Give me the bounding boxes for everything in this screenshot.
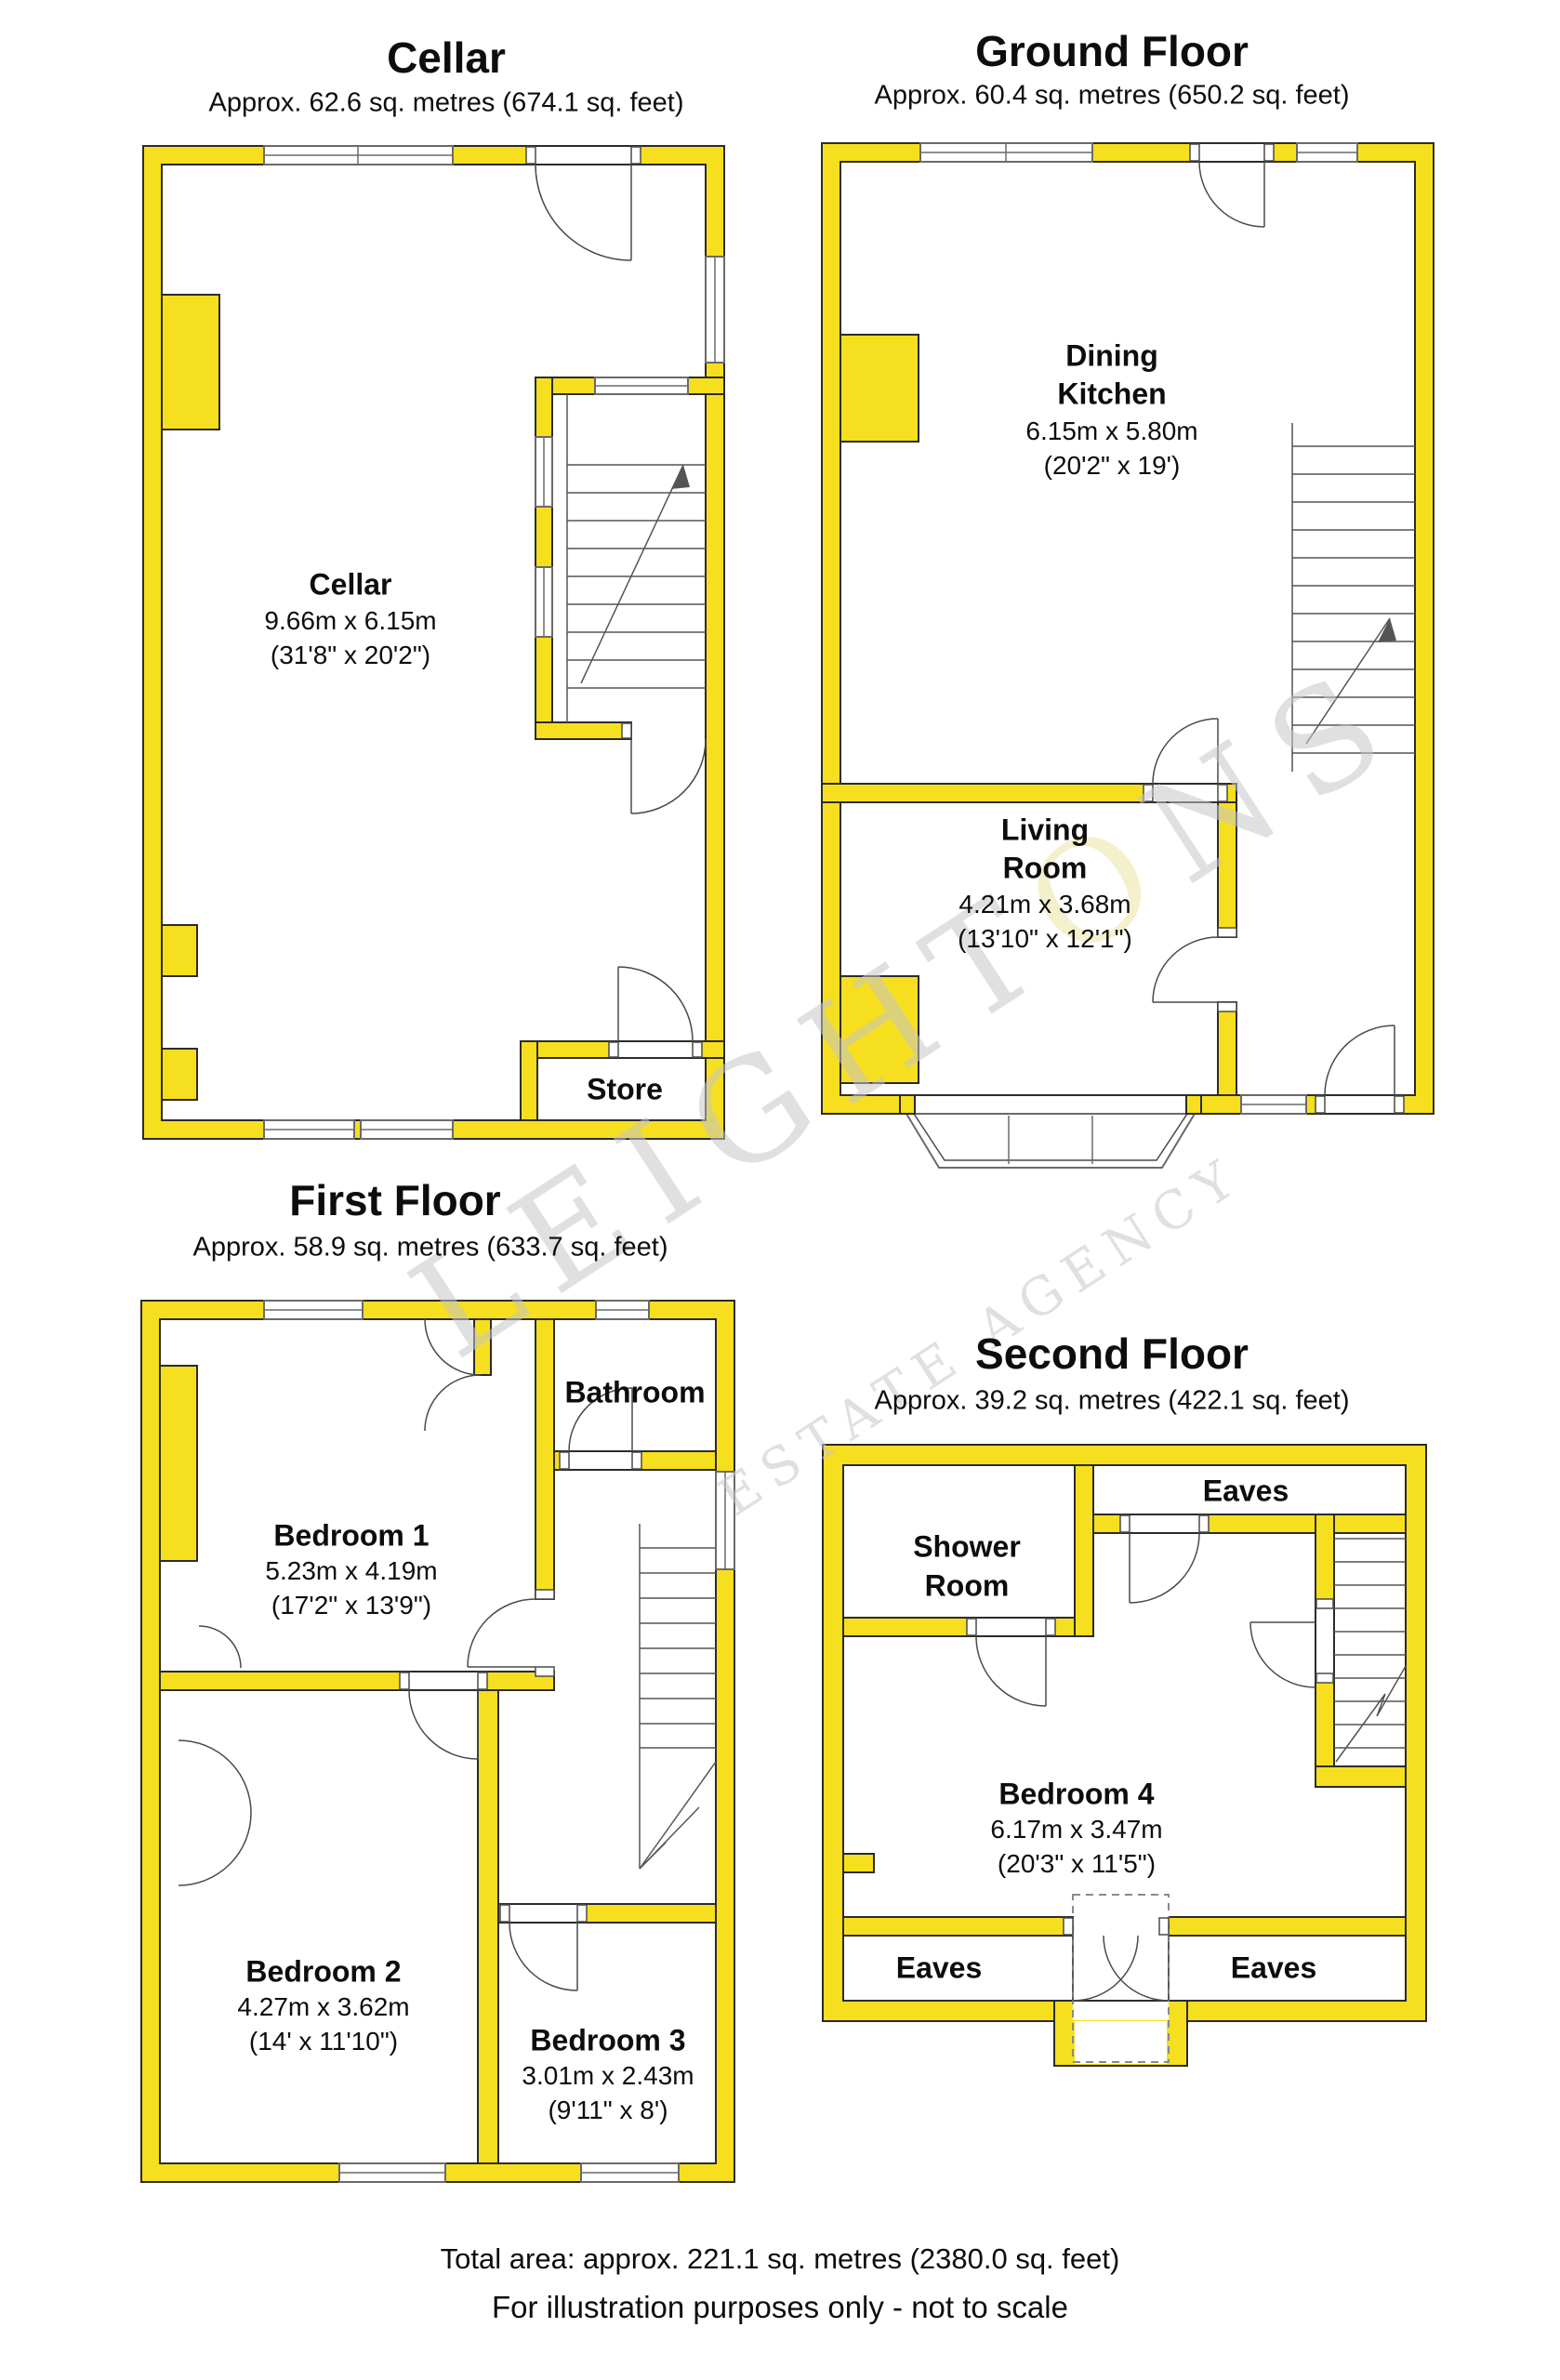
cellar-plan (143, 146, 724, 1139)
room-label-shower: Shower (913, 1530, 1021, 1565)
room-label-cellar: Cellar (310, 568, 392, 602)
room-dims-lr-metric: 4.21m x 3.68m (958, 890, 1130, 919)
room-label-eaves-right: Eaves (1231, 1951, 1317, 1986)
second-area: Approx. 39.2 sq. metres (422.1 sq. feet) (875, 1386, 1350, 1417)
room-dims-dk-imperial: (20'2" x 19') (1044, 451, 1181, 481)
room-label-shower-2: Room (925, 1569, 1010, 1604)
room-dims-b3-imperial: (9'11" x 8') (548, 2096, 668, 2125)
room-dims-b1-imperial: (17'2" x 13'9") (271, 1591, 431, 1620)
room-label-living-2: Room (1003, 852, 1088, 886)
ground-title: Ground Floor (975, 26, 1249, 76)
room-label-dining: Dining (1065, 339, 1158, 374)
room-label-bedroom3: Bedroom 3 (530, 2024, 685, 2058)
room-label-eaves-left: Eaves (896, 1951, 983, 1986)
ground-chimney (840, 335, 919, 442)
cellar-chimney (162, 295, 219, 430)
room-label-store: Store (587, 1073, 663, 1107)
room-dims-b2-imperial: (14' x 11'10") (249, 2027, 398, 2056)
room-dims-b2-metric: 4.27m x 3.62m (237, 1992, 409, 2022)
bay-window (900, 1095, 1201, 1168)
room-dims-b1-metric: 5.23m x 4.19m (265, 1556, 437, 1586)
room-dims-b4-imperial: (20'3" x 11'5") (998, 1849, 1156, 1879)
room-label-living: Living (1001, 813, 1089, 848)
room-label-bedroom4: Bedroom 4 (998, 1778, 1154, 1812)
room-label-bedroom2: Bedroom 2 (245, 1955, 401, 1990)
cellar-title: Cellar (387, 33, 506, 83)
total-area-text: Total area: approx. 221.1 sq. metres (23… (441, 2242, 1120, 2276)
room-label-eaves-top: Eaves (1203, 1474, 1289, 1509)
floorplan-graphics: LEIGHTONS ESTATE AGENCY (0, 0, 1560, 2380)
room-dims-b3-metric: 3.01m x 2.43m (522, 2061, 694, 2091)
second-title: Second Floor (975, 1329, 1249, 1379)
first-title: First Floor (289, 1175, 500, 1225)
room-label-bathroom: Bathroom (564, 1376, 705, 1410)
room-dims-dk-metric: 6.15m x 5.80m (1025, 416, 1197, 446)
ground-area: Approx. 60.4 sq. metres (650.2 sq. feet) (875, 81, 1350, 112)
first-area: Approx. 58.9 sq. metres (633.7 sq. feet) (193, 1233, 668, 1263)
cellar-area: Approx. 62.6 sq. metres (674.1 sq. feet) (209, 88, 684, 119)
room-dims-b4-metric: 6.17m x 3.47m (990, 1815, 1162, 1844)
first-chimney (160, 1366, 197, 1561)
room-label-bedroom1: Bedroom 1 (273, 1519, 429, 1554)
room-dims-cellar-imperial: (31'8" x 20'2") (271, 641, 430, 670)
room-dims-lr-imperial: (13'10" x 12'1") (958, 924, 1132, 954)
disclaimer-text: For illustration purposes only - not to … (492, 2290, 1068, 2325)
room-label-kitchen: Kitchen (1057, 377, 1166, 412)
floorplan-page: LEIGHTONS ESTATE AGENCY Cellar Approx. 6… (0, 0, 1560, 2380)
room-dims-cellar-metric: 9.66m x 6.15m (264, 606, 436, 636)
